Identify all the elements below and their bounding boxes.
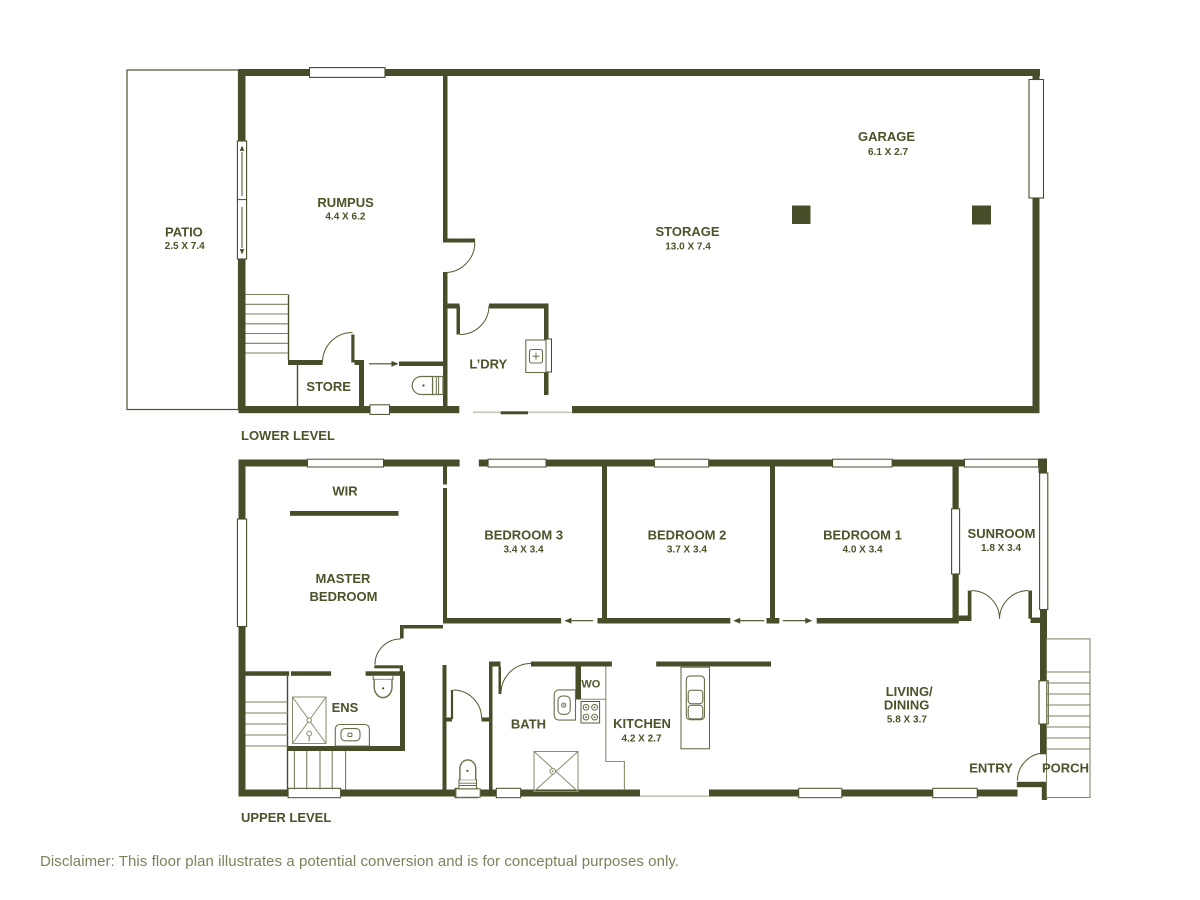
svg-text:GARAGE: GARAGE <box>858 129 915 144</box>
svg-text:BEDROOM 2: BEDROOM 2 <box>648 528 727 543</box>
svg-text:ENTRY: ENTRY <box>969 761 1013 776</box>
svg-text:1.8 X 3.4: 1.8 X 3.4 <box>981 543 1021 554</box>
svg-text:4.2 X 2.7: 4.2 X 2.7 <box>621 734 661 745</box>
svg-text:L’DRY: L’DRY <box>469 356 507 371</box>
svg-text:Disclaimer: This floor plan il: Disclaimer: This floor plan illustrates … <box>40 853 679 870</box>
svg-text:WO: WO <box>581 679 600 691</box>
svg-text:KITCHEN: KITCHEN <box>613 716 671 731</box>
svg-text:LOWER LEVEL: LOWER LEVEL <box>241 428 335 443</box>
svg-text:5.8 X 3.7: 5.8 X 3.7 <box>887 715 927 726</box>
svg-text:BATH: BATH <box>511 717 546 732</box>
svg-text:WIR: WIR <box>332 484 358 499</box>
svg-text:BEDROOM: BEDROOM <box>310 589 378 604</box>
svg-text:UPPER LEVEL: UPPER LEVEL <box>241 810 331 825</box>
svg-text:STORE: STORE <box>306 379 351 394</box>
svg-text:ENS: ENS <box>332 700 359 715</box>
svg-text:13.0 X 7.4: 13.0 X 7.4 <box>665 241 711 252</box>
svg-text:BEDROOM 3: BEDROOM 3 <box>484 528 563 543</box>
svg-text:2.5 X 7.4: 2.5 X 7.4 <box>165 241 205 252</box>
svg-text:STORAGE: STORAGE <box>655 224 719 239</box>
svg-text:BEDROOM 1: BEDROOM 1 <box>823 528 902 543</box>
svg-text:PATIO: PATIO <box>165 225 203 240</box>
svg-text:4.0 X 3.4: 4.0 X 3.4 <box>842 545 882 556</box>
svg-text:PORCH: PORCH <box>1042 761 1089 776</box>
svg-text:SUNROOM: SUNROOM <box>968 526 1036 541</box>
svg-text:RUMPUS: RUMPUS <box>317 195 374 210</box>
svg-text:3.4 X 3.4: 3.4 X 3.4 <box>503 545 543 556</box>
svg-text:DINING: DINING <box>884 698 930 713</box>
svg-text:6.1 X 2.7: 6.1 X 2.7 <box>868 147 908 158</box>
svg-text:MASTER: MASTER <box>316 571 372 586</box>
svg-text:4.4 X 6.2: 4.4 X 6.2 <box>325 211 365 222</box>
svg-text:3.7 X 3.4: 3.7 X 3.4 <box>667 545 707 556</box>
